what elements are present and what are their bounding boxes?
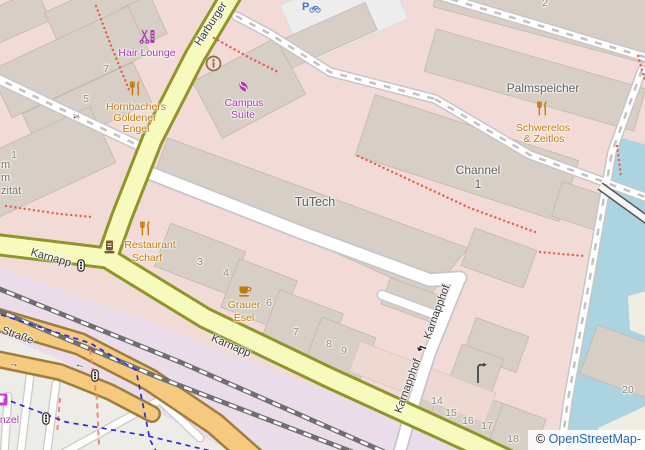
bicycle-parking-icon: P — [302, 2, 321, 13]
attribution-bar: © OpenStreetMap- — [528, 430, 645, 450]
openstreetmap-link[interactable]: OpenStreetMap- — [549, 432, 641, 446]
map-canvas[interactable]: P → ← ← ↰ Harburger Karnapp Karnapp er S… — [0, 0, 645, 450]
copyright-symbol: © — [536, 432, 545, 446]
map-graphics — [0, 0, 645, 450]
